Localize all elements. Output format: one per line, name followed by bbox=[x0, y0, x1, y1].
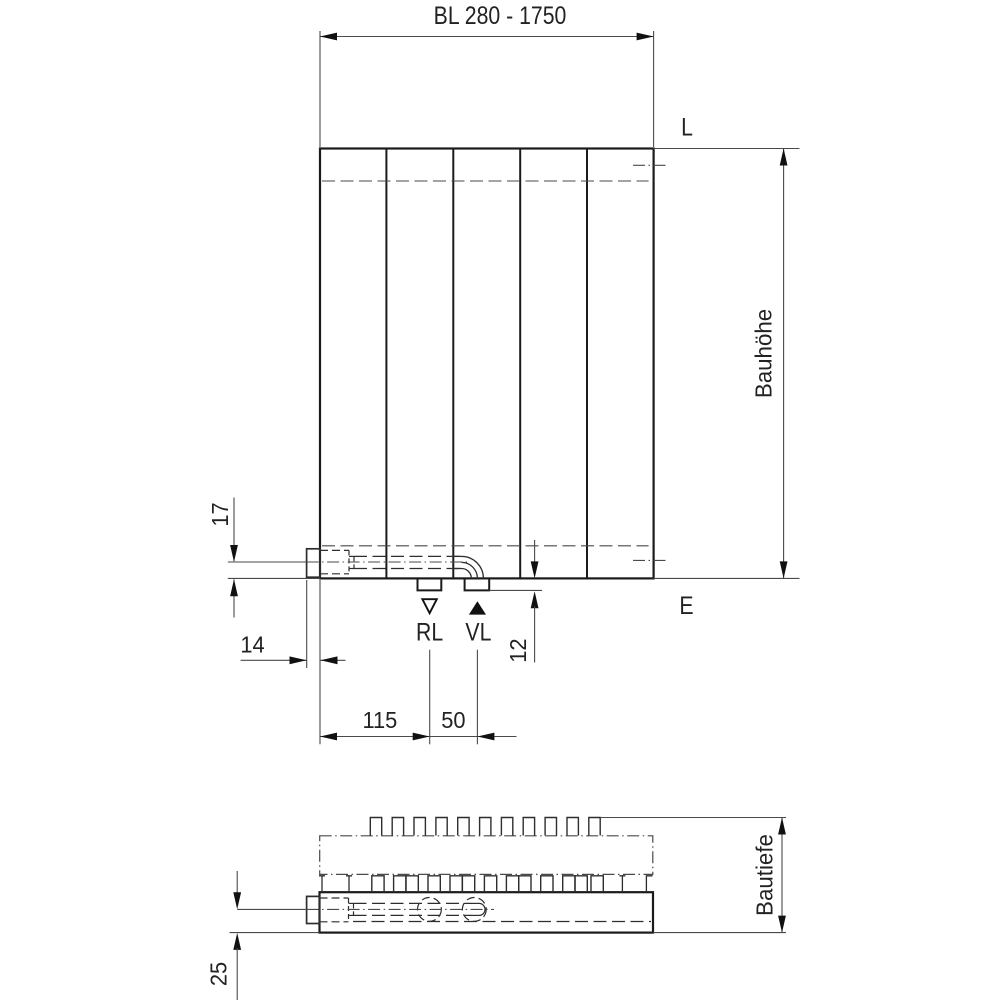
svg-text:50: 50 bbox=[441, 707, 465, 733]
svg-text:17: 17 bbox=[207, 502, 233, 526]
svg-text:VL: VL bbox=[465, 618, 491, 646]
svg-text:115: 115 bbox=[362, 707, 397, 733]
svg-text:BL 280 - 1750: BL 280 - 1750 bbox=[434, 1, 567, 29]
svg-text:L: L bbox=[681, 113, 693, 141]
svg-text:14: 14 bbox=[240, 632, 264, 658]
svg-text:25: 25 bbox=[206, 962, 232, 986]
svg-text:12: 12 bbox=[505, 638, 531, 662]
svg-text:Bauhöhe: Bauhöhe bbox=[750, 309, 777, 398]
svg-text:Bautiefe: Bautiefe bbox=[751, 834, 778, 916]
svg-text:E: E bbox=[679, 591, 693, 619]
svg-text:RL: RL bbox=[416, 618, 443, 646]
